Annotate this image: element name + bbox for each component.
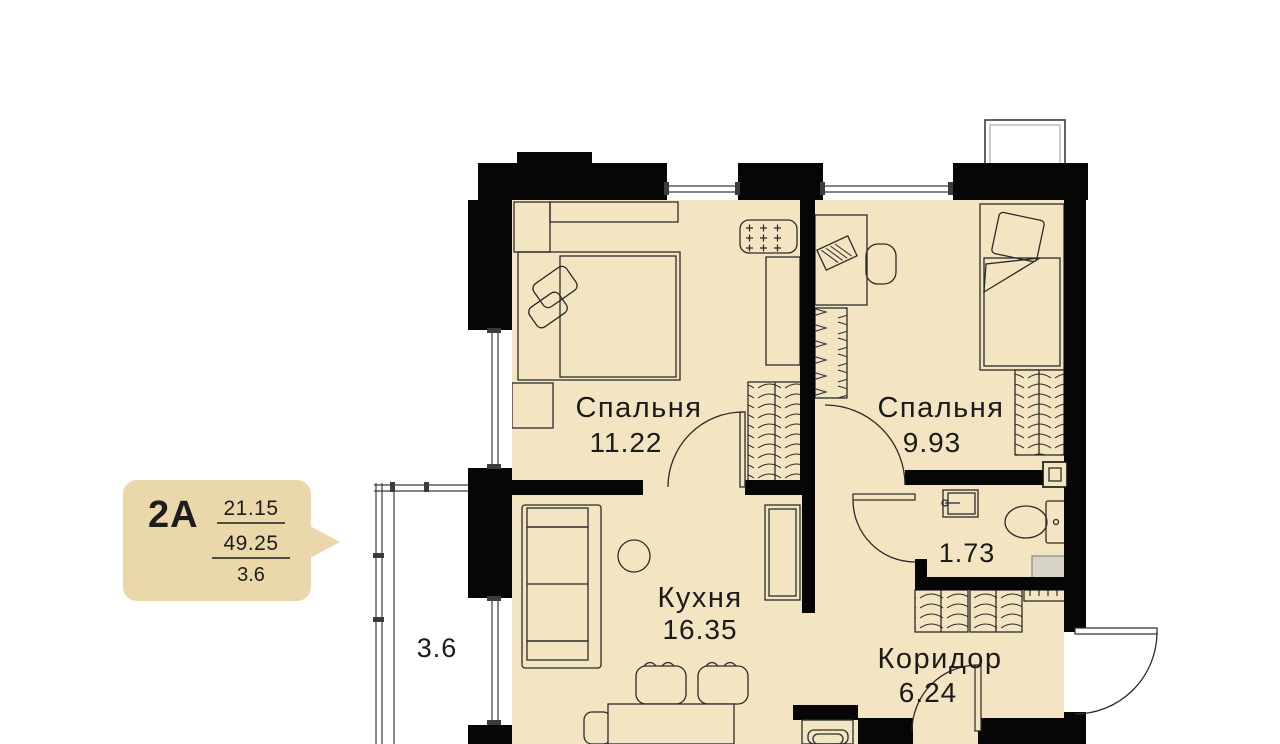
- bedroom-2-name: Спальня: [877, 392, 1004, 424]
- vent-shaft: [1043, 462, 1067, 487]
- floorplan-drawing: Спальня 11.22 Спальня 9.93 Кухня 16.35 1…: [0, 0, 1280, 744]
- kitchen-name: Кухня: [657, 582, 742, 614]
- bathroom-area: 1.73: [939, 538, 996, 568]
- badge-unit-label: 2А: [148, 494, 199, 536]
- entrance-door: [1075, 628, 1157, 714]
- corridor-area: 6.24: [899, 677, 958, 708]
- washing-machine: [802, 720, 853, 744]
- wardrobe: [748, 382, 802, 482]
- window: [820, 163, 953, 200]
- glazing-mullion: [390, 482, 395, 492]
- glazing-mullion: [424, 482, 429, 492]
- balcony-area: 3.6: [417, 633, 458, 663]
- badge-total-area: 49.25: [223, 532, 278, 555]
- badge-pointer: [308, 525, 340, 559]
- glazing-mullion: [373, 553, 384, 558]
- badge-living-area: 21.15: [223, 497, 278, 520]
- unit-badge[interactable]: 2А 21.15 49.25 3.6: [123, 480, 340, 601]
- badge-balcony-area: 3.6: [237, 564, 265, 586]
- shelf-rack: [815, 308, 847, 398]
- kitchen-area: 16.35: [662, 614, 737, 645]
- bedroom-1-name: Спальня: [575, 392, 702, 424]
- glazing-mullion: [373, 617, 384, 622]
- wardrobe: [915, 590, 1022, 632]
- floorplan-page: Спальня 11.22 Спальня 9.93 Кухня 16.35 1…: [0, 0, 1280, 744]
- window: [664, 163, 740, 200]
- ac-basket: [985, 120, 1065, 167]
- corridor-name: Коридор: [877, 643, 1002, 675]
- washer-under-counter: [1032, 556, 1066, 578]
- bedroom-2-area: 9.93: [903, 427, 962, 458]
- balcony: [373, 482, 480, 744]
- window: [468, 328, 512, 469]
- balcony-window: [468, 596, 512, 725]
- dining-table: [608, 704, 734, 744]
- bedroom-1-area: 11.22: [590, 427, 663, 458]
- wardrobe: [1015, 370, 1064, 455]
